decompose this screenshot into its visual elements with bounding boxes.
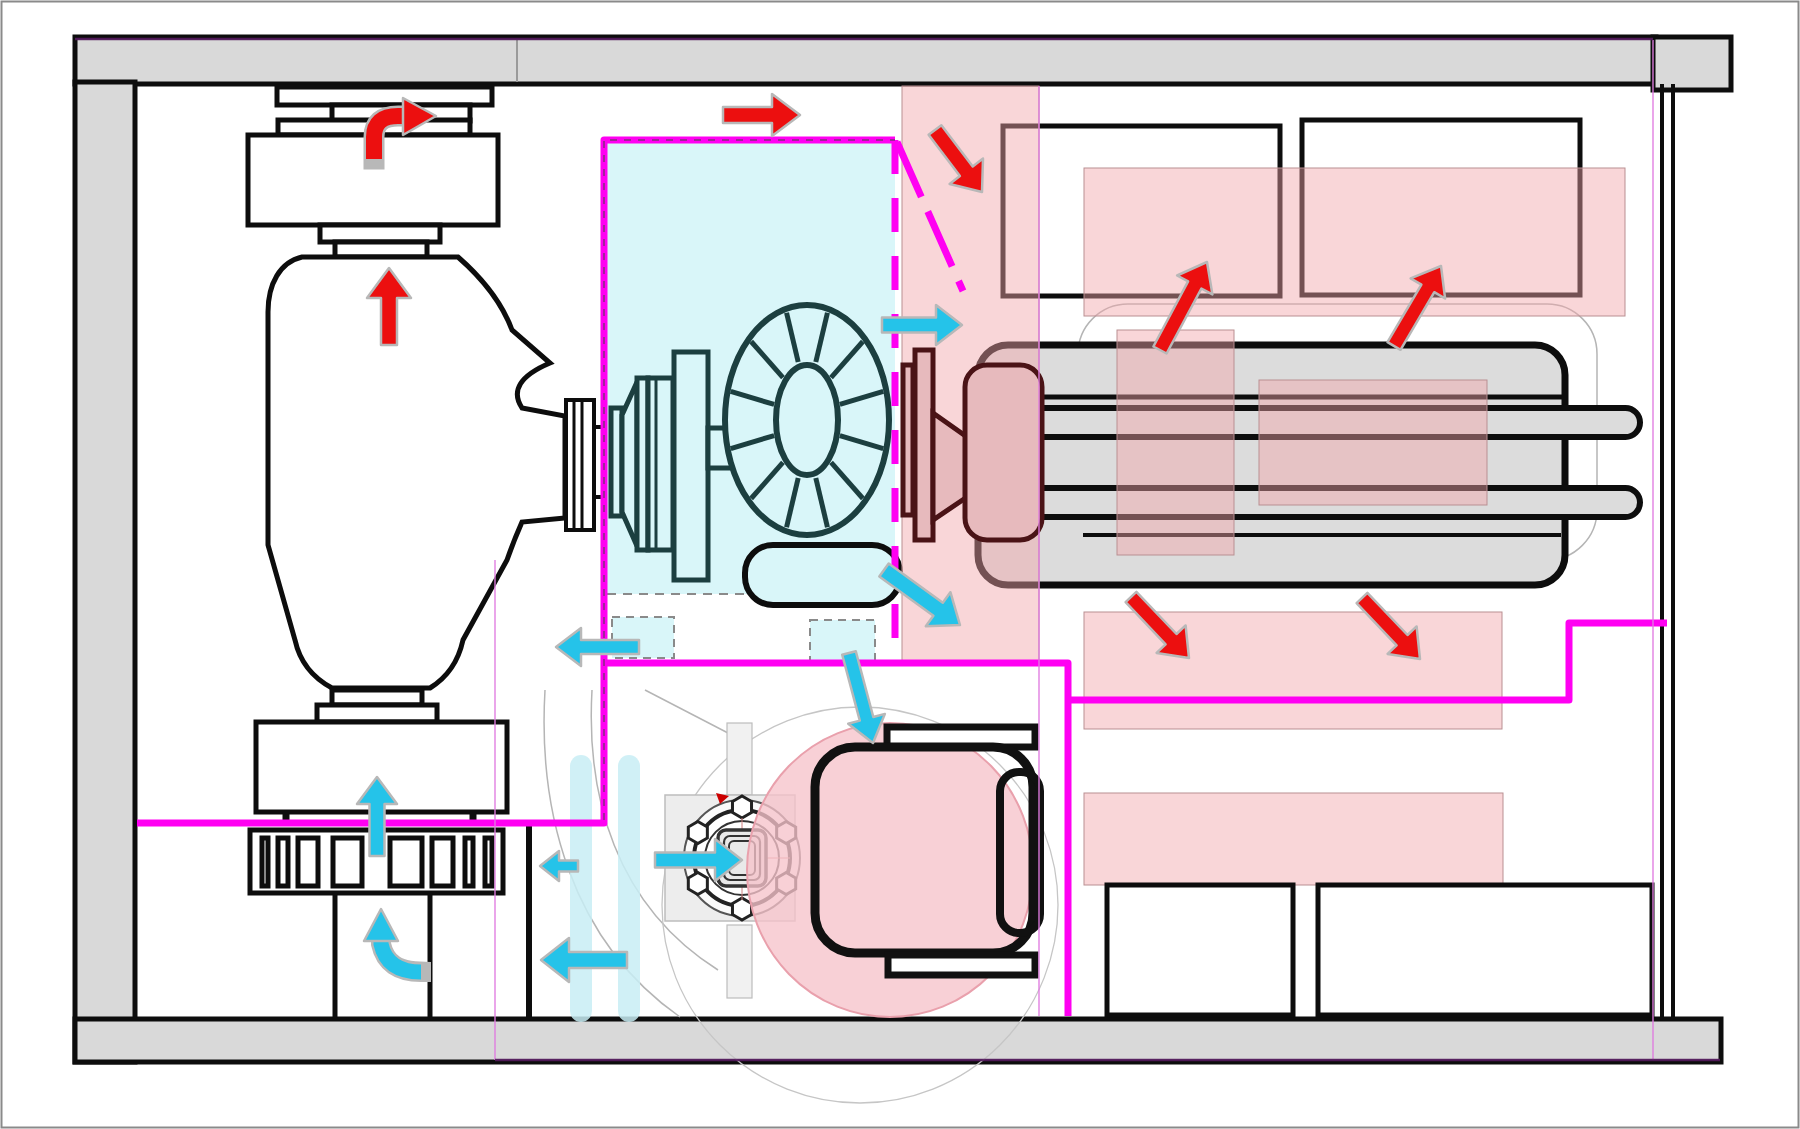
fan-hub [776, 365, 838, 475]
bottom-wall [75, 1019, 1721, 1062]
equipment-boxes-bottom [1107, 885, 1652, 1015]
flange-bolt [732, 898, 751, 920]
airflow-diagram [0, 0, 1800, 1129]
muffler-plate-1 [277, 87, 492, 105]
hot-zone-top-band [1084, 168, 1625, 316]
flange-bolt [732, 796, 751, 818]
engine-front-drive [903, 350, 1042, 540]
hot-overlay-engine-right [1259, 380, 1487, 505]
mount-rect-lower [727, 925, 752, 998]
hot-overlay-engine-left [1117, 330, 1234, 555]
radiator-fan [725, 305, 889, 535]
hot-zone-mid-band [1084, 612, 1502, 729]
equipment-box-4 [1318, 885, 1652, 1015]
bell-housing [965, 365, 1042, 540]
damper-plate-2 [915, 350, 933, 540]
chair-bottom-bar [888, 955, 1035, 975]
diagram-stage [0, 0, 1800, 1129]
cold-duct-bar-right [618, 755, 640, 1022]
left-wall [75, 82, 135, 1062]
muffler-plate-4 [320, 225, 440, 242]
clutch-plate-3 [648, 378, 673, 550]
cold-duct-bar-left [570, 755, 592, 1022]
intercooler-capsule [745, 545, 900, 605]
tank-connector [566, 400, 594, 530]
flange-bolt [688, 822, 707, 844]
hot-zone-lower-band [1084, 793, 1503, 885]
top-wall-right-cap [1653, 37, 1731, 90]
flange-bolt [688, 873, 707, 895]
mount-rect-upper [727, 723, 752, 795]
tank-neck-plate-2 [317, 705, 437, 722]
clutch-plate-4 [674, 352, 708, 580]
damper-plate-1 [903, 365, 913, 515]
equipment-box-3 [1107, 885, 1293, 1015]
top-wall [75, 37, 1656, 84]
